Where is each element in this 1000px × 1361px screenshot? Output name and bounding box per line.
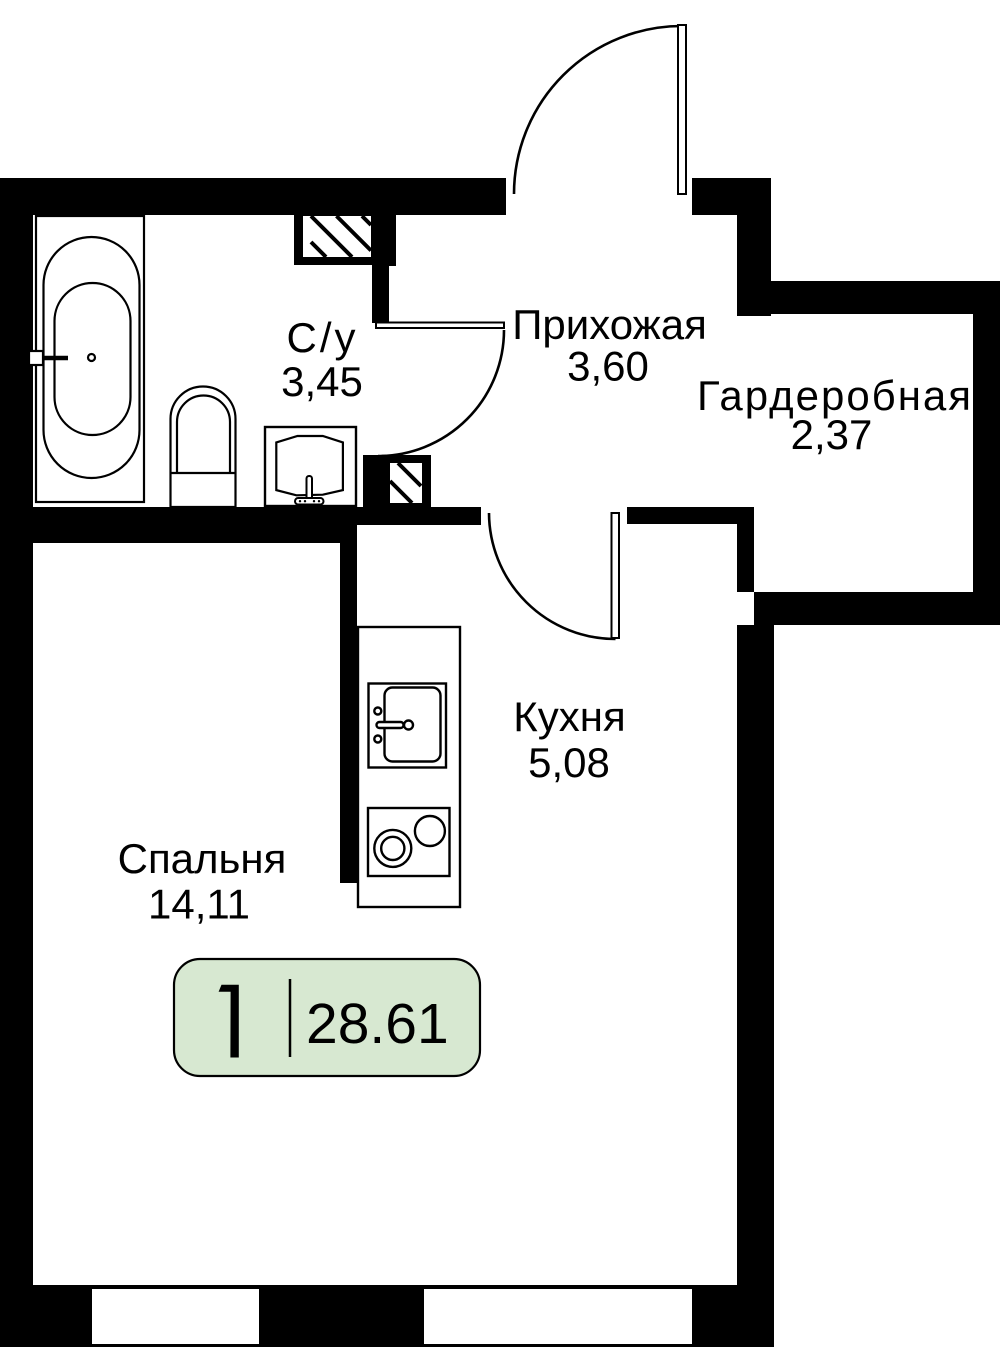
svg-text:2,37: 2,37 bbox=[791, 411, 873, 458]
svg-text:Спальня: Спальня bbox=[118, 835, 287, 882]
svg-text:28.61: 28.61 bbox=[306, 992, 449, 1056]
svg-text:С/у: С/у bbox=[287, 314, 359, 361]
svg-text:3,45: 3,45 bbox=[281, 358, 363, 405]
svg-text:Кухня: Кухня bbox=[513, 693, 625, 740]
svg-text:Прихожая: Прихожая bbox=[512, 301, 707, 348]
svg-text:3,60: 3,60 bbox=[567, 343, 649, 390]
svg-text:5,08: 5,08 bbox=[528, 739, 610, 786]
svg-text:14,11: 14,11 bbox=[148, 881, 250, 928]
